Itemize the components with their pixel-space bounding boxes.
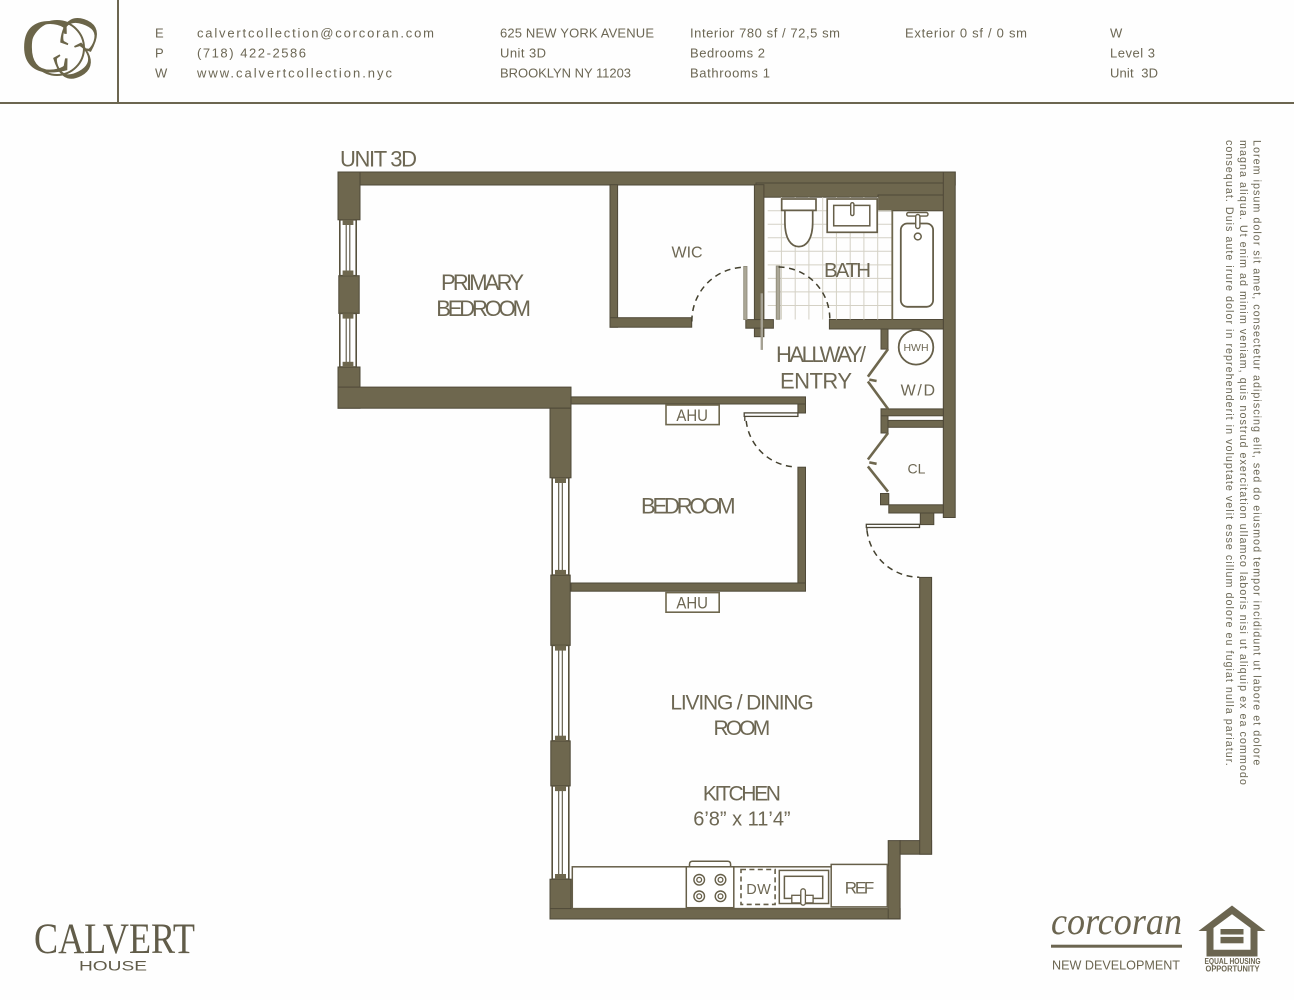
svg-text:ENTRY: ENTRY (780, 369, 852, 394)
svg-text:UNIT 3D: UNIT 3D (340, 147, 417, 172)
svg-text:BEDROOM: BEDROOM (436, 296, 531, 321)
svg-text:6’8” x 11’4”: 6’8” x 11’4” (693, 809, 790, 831)
svg-text:OPPORTUNITY: OPPORTUNITY (1206, 964, 1261, 973)
svg-text:AHU: AHU (676, 594, 708, 613)
svg-text:CL: CL (908, 460, 926, 476)
svg-text:WIC: WIC (672, 245, 703, 262)
svg-text:ROOM: ROOM (714, 717, 771, 740)
svg-text:DW: DW (746, 882, 771, 898)
svg-text:CALVERT: CALVERT (34, 916, 195, 963)
svg-text:REF: REF (845, 879, 875, 898)
svg-text:BATH: BATH (824, 259, 871, 282)
svg-text:NEW DEVELOPMENT: NEW DEVELOPMENT (1052, 958, 1180, 973)
svg-text:LIVING / DINING: LIVING / DINING (670, 692, 813, 715)
svg-text:HALLWAY/: HALLWAY/ (776, 342, 867, 367)
svg-text:BEDROOM: BEDROOM (641, 494, 736, 519)
svg-text:PRIMARY: PRIMARY (441, 270, 524, 295)
svg-text:W/D: W/D (901, 383, 936, 400)
svg-text:HWH: HWH (903, 342, 928, 354)
svg-text:KITCHEN: KITCHEN (703, 783, 781, 806)
svg-text:HOUSE: HOUSE (79, 958, 147, 974)
svg-text:corcoran: corcoran (1051, 901, 1182, 943)
svg-text:AHU: AHU (676, 406, 708, 425)
